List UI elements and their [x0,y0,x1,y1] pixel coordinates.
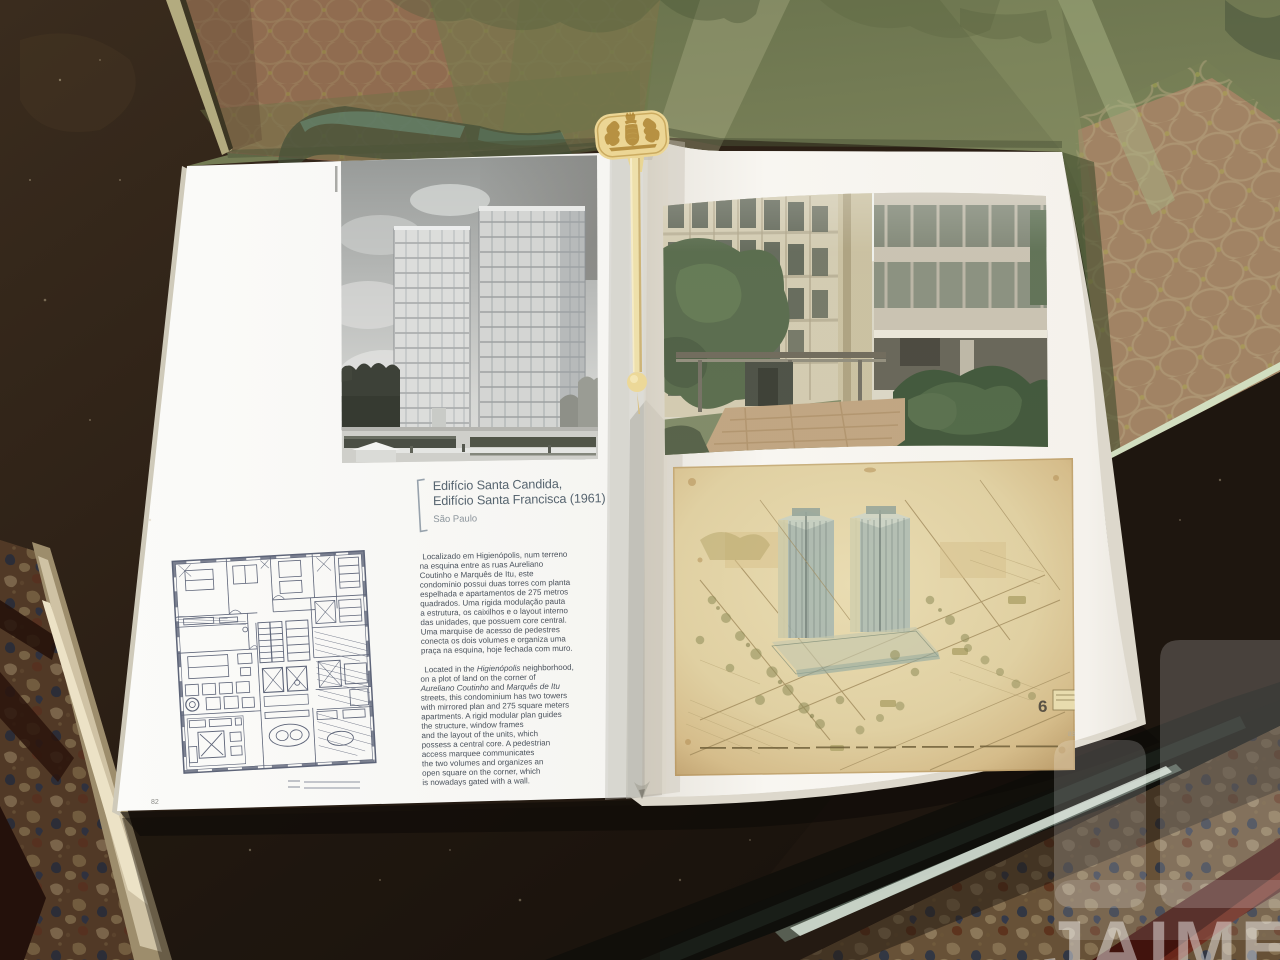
svg-text:Edifício Santa Candida,: Edifício Santa Candida, [433,477,563,493]
svg-text:83: 83 [1068,731,1076,738]
svg-text:is nowadays gated with a wall.: is nowadays gated with a wall. [422,776,530,787]
svg-text:82: 82 [151,799,159,806]
svg-text:JAIME: JAIME [1043,906,1280,960]
svg-text:São Paulo: São Paulo [433,513,477,525]
svg-text:6: 6 [1038,697,1047,716]
